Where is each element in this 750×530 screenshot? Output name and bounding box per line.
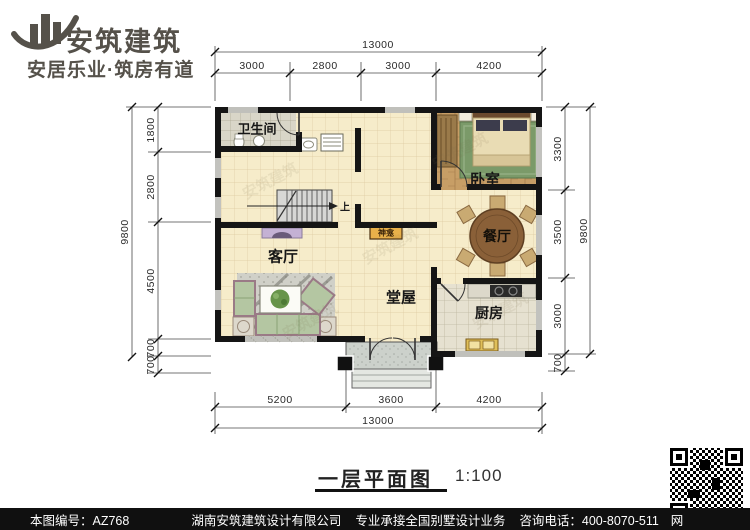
company-name: 湖南安筑建筑设计有限公司 xyxy=(191,510,341,529)
shrine-label: 神龛 xyxy=(378,228,394,239)
dim-top-total: 13000 xyxy=(362,39,394,51)
footer-bar: 本图编号：AZ768 湖南安筑建筑设计有限公司 专业承接全国别墅设计业务 咨询电… xyxy=(0,508,750,530)
dim-top-seg: 4200 xyxy=(476,60,501,72)
sheet-number: 本图编号：AZ768 xyxy=(30,510,129,529)
brand-name: 安筑建筑 xyxy=(66,20,182,59)
room-label-hall: 堂屋 xyxy=(386,287,416,308)
dim-bottom-seg: 4200 xyxy=(476,394,501,406)
floor-plan-sheet: 安筑建筑 安筑建筑 安筑建筑 安筑建筑 安筑建筑 安筑建筑 安居乐业·筑房有道 … xyxy=(0,0,750,530)
room-label-dining: 餐厅 xyxy=(483,226,511,246)
phone-text: 咨询电话：400-8070-511 xyxy=(519,510,658,529)
wardrobe xyxy=(437,115,457,167)
drawing-title-underline xyxy=(315,489,447,492)
dim-right-seg: 3300 xyxy=(552,136,564,161)
sofa-set xyxy=(233,273,336,336)
dim-bottom-seg: 3600 xyxy=(378,394,403,406)
dim-left-seg: 700 xyxy=(145,355,157,374)
porch xyxy=(346,342,437,369)
room-label-kitchen: 厨房 xyxy=(475,303,503,323)
dim-left-seg: 1800 xyxy=(145,117,157,142)
dim-left-seg: 4500 xyxy=(145,268,157,293)
brand-tagline: 安居乐业·筑房有道 xyxy=(27,55,194,82)
drawing-scale: 1:100 xyxy=(455,466,503,486)
stairs-up-label: 上 xyxy=(340,199,350,214)
dim-top-seg: 3000 xyxy=(385,60,410,72)
dim-right-seg: 700 xyxy=(552,353,564,372)
dim-top-seg: 2800 xyxy=(312,60,337,72)
dim-left-total: 9800 xyxy=(119,219,131,244)
dim-top-seg: 3000 xyxy=(239,60,264,72)
drawing-title: 一层平面图 xyxy=(318,463,433,492)
web-mark: 网 xyxy=(671,510,684,529)
service-text: 专业承接全国别墅设计业务 xyxy=(355,510,505,529)
room-label-bedroom: 卧室 xyxy=(470,169,500,190)
porch-steps xyxy=(352,369,431,388)
room-label-living: 客厅 xyxy=(268,246,298,267)
room-label-bathroom: 卫生间 xyxy=(237,119,276,138)
dim-bottom-total: 13000 xyxy=(362,415,394,427)
dim-right-seg: 3500 xyxy=(552,219,564,244)
dim-left-seg: 2800 xyxy=(145,174,157,199)
dim-bottom-seg: 5200 xyxy=(267,394,292,406)
dim-right-seg: 3000 xyxy=(552,303,564,328)
dim-right-total: 9800 xyxy=(578,218,590,243)
